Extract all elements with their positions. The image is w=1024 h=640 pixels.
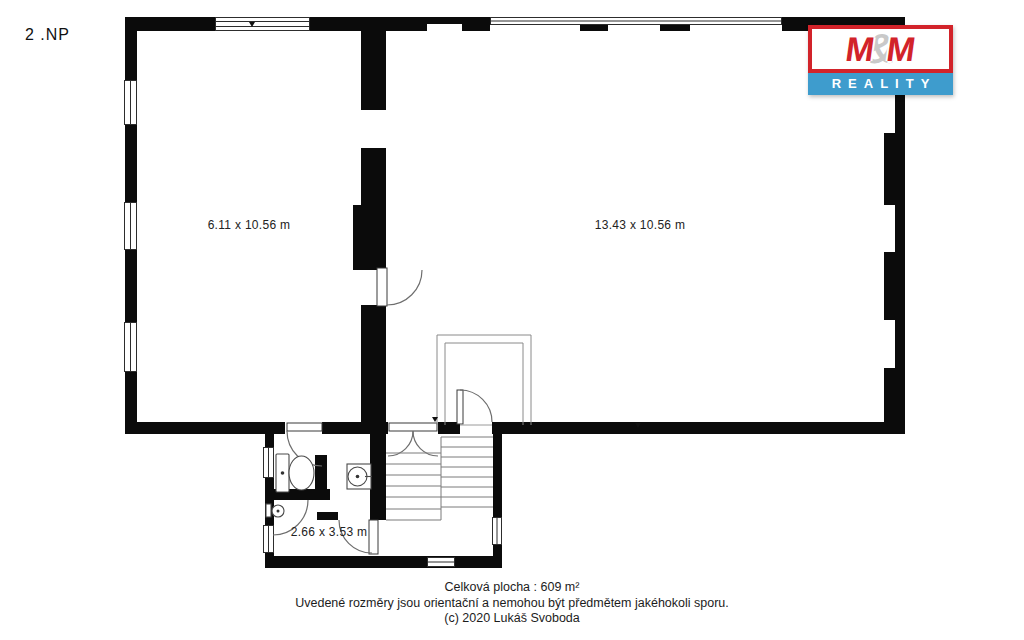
staircase <box>386 437 493 520</box>
toilet-icon <box>276 454 314 492</box>
logo-letter-m1: M <box>844 32 877 66</box>
floorplan-drawing <box>0 0 1024 640</box>
logo-letter-m2: M <box>884 32 917 66</box>
door-central-wall <box>377 268 422 306</box>
floor-label: 2 .NP <box>25 26 70 44</box>
footer-copyright: (c) 2020 Lukáš Svoboda <box>0 611 1024 627</box>
stairwell-enclosure <box>437 335 531 425</box>
footer-disclaimer: Uvedené rozměry jsou orientační a nemoho… <box>0 596 1024 612</box>
sink-icon <box>347 464 372 489</box>
windows <box>125 18 782 567</box>
plan-footer: Celková plocha : 609 m² Uvedené rozměry … <box>0 580 1024 627</box>
room-dimension-left: 6.11 x 10.56 m <box>208 218 291 232</box>
floorplan-canvas: 2 .NP 6.11 x 10.56 m 13.43 x 10.56 m 2.6… <box>0 0 1024 640</box>
door-double-stairs <box>388 423 438 456</box>
shower-icon <box>266 504 284 517</box>
room-dimension-bathroom: 2.66 x 3.53 m <box>291 525 368 539</box>
logo-reality-band: REALITY <box>808 73 953 95</box>
room-dimension-right: 13.43 x 10.56 m <box>595 218 686 232</box>
door-stairwell-enclosure <box>457 390 492 424</box>
logo-mm-box: M & M <box>808 25 953 73</box>
mm-reality-logo: M & M REALITY <box>808 25 953 95</box>
footer-total-area: Celková plocha : 609 m² <box>0 580 1024 596</box>
